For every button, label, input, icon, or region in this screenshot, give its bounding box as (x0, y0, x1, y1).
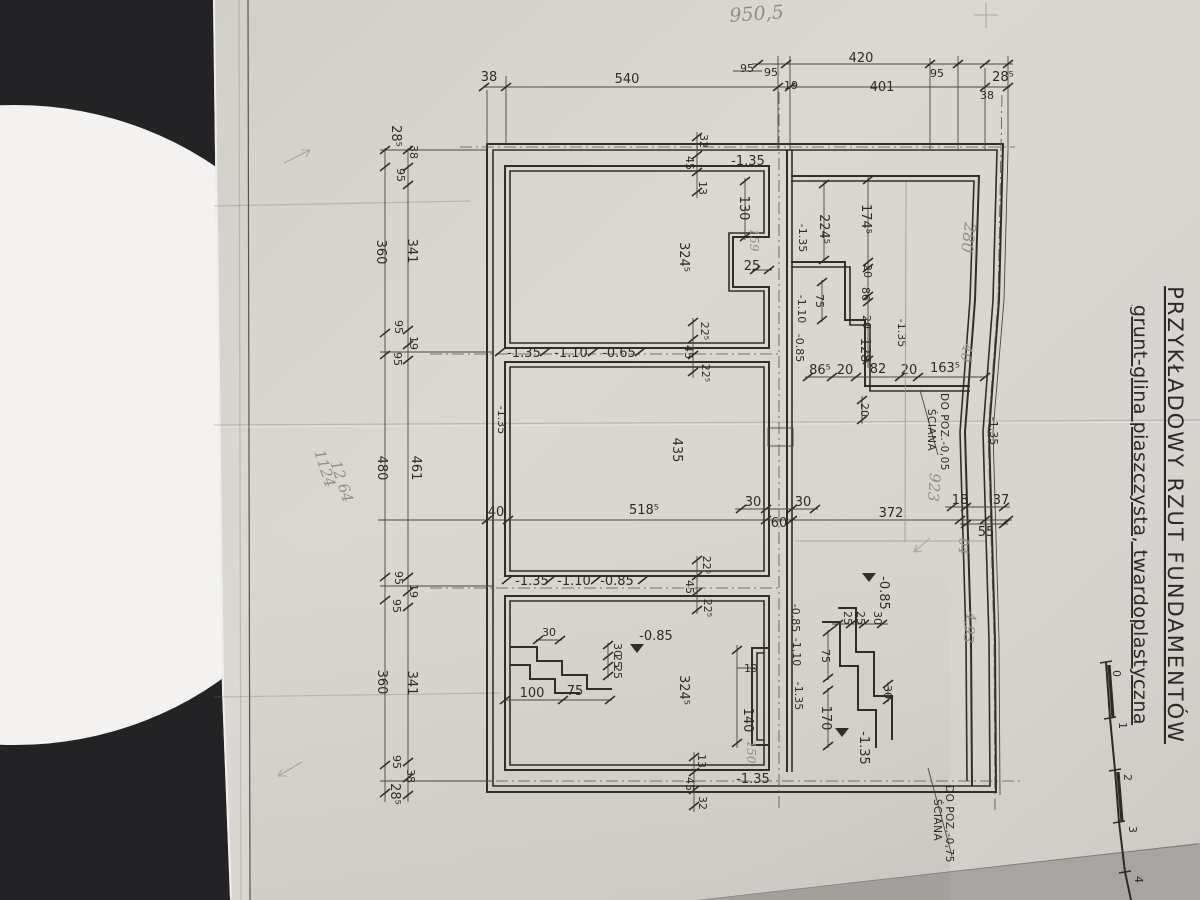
handwritten-number: 150 (744, 741, 758, 764)
handwritten-number: 923 (924, 472, 944, 502)
dim-label: 20 (837, 363, 854, 378)
dim-label: 45 (683, 156, 696, 170)
dim-label: 30 (795, 495, 812, 510)
level-label: -1.35 (515, 574, 549, 589)
level-label: -1.10 (795, 295, 808, 323)
wall-note-bottom-line1: ŚCIANA (931, 799, 944, 842)
dim-label: 32 (697, 134, 710, 148)
dim-label: 86⁵ (809, 363, 831, 378)
handwritten-number: 4,93 (959, 610, 978, 644)
level-label: -1.35 (731, 154, 765, 169)
scene: 38 540 95 95 19 420 401 95 38 28⁵ 28⁵ 38… (0, 0, 1200, 900)
dim-label: 324⁵ (676, 242, 691, 272)
dim-label: 341 (404, 239, 419, 264)
dim-label: 40 (488, 505, 505, 520)
level-label: -1.35 (736, 772, 770, 787)
dim-label: 22⁵ (700, 556, 713, 574)
dim-label: 22⁵ (698, 322, 711, 340)
dim-label: 95 (390, 599, 403, 613)
dim-label: 30 (871, 611, 884, 625)
dim-label: 45 (683, 777, 696, 791)
dim-label: 75 (819, 649, 832, 663)
dim-label: 95 (392, 320, 405, 334)
dim-label: 86 (859, 287, 872, 301)
dim-label: 37 (993, 493, 1010, 508)
dim-label: 19 (407, 336, 420, 350)
dim-label: 341 (404, 671, 419, 696)
level-label: -0.85 (876, 576, 891, 610)
level-label: -0.85 (789, 604, 802, 632)
scale-tick-label: 1 (1116, 722, 1129, 729)
dim-label: 174⁵ (858, 204, 873, 234)
level-label: -1.35 (796, 224, 809, 252)
wall-note-bottom-line2: DO POZ.-0,75 (943, 785, 955, 863)
wall-note-mid-line1: ŚCIANA (925, 409, 938, 452)
dim-label: 420 (849, 51, 874, 66)
level-label: -1.35 (495, 406, 508, 434)
dim-label: 75 (813, 294, 826, 308)
dim-label: 75 (567, 684, 584, 699)
dim-label: 13 (696, 181, 709, 195)
level-label: -1.35 (987, 417, 1000, 445)
dim-label: 435 (669, 438, 684, 463)
dim-label: 540 (615, 72, 640, 87)
dim-label: 480 (374, 456, 389, 481)
dim-label: 19 (784, 79, 798, 92)
dim-label: 372 (879, 506, 904, 521)
dim-label: 38 (980, 89, 994, 102)
dim-label: 461 (408, 456, 423, 481)
dim-label: 25 (611, 665, 624, 679)
dim-label: 140 (740, 708, 755, 733)
dim-label: 30 (745, 495, 762, 510)
level-label: -1.35 (792, 682, 805, 710)
scale-tick-label: 3 (1126, 826, 1139, 833)
dim-label: 30 (881, 685, 894, 699)
dim-label: 20 (861, 264, 874, 278)
dim-label: 360 (373, 240, 388, 265)
dim-label: 20 (901, 363, 918, 378)
dim-label: 20 (858, 403, 871, 417)
wall-note-mid-line2: DO POZ.-0,05 (938, 393, 950, 471)
dim-label: 95 (930, 67, 944, 80)
dim-label: 20 (860, 315, 873, 329)
dim-label: 28⁵ (387, 783, 402, 805)
dim-label: 401 (870, 80, 895, 95)
dim-label: 22⁵ (701, 599, 714, 617)
level-label: -1.10 (790, 638, 803, 666)
drawing-title: PRZYKŁADOWY RZUT FUNDAMENTÓW (1163, 286, 1188, 744)
dim-label: 95 (390, 755, 403, 769)
dim-label: 38 (481, 70, 498, 85)
dim-label: 30 (542, 626, 556, 639)
dim-label: 100 (520, 686, 545, 701)
dim-label: 95 (740, 62, 754, 75)
dim-label: 163⁵ (930, 361, 960, 376)
handwritten-number: 280 (957, 220, 980, 254)
dim-label: 38 (404, 769, 417, 783)
dim-label: 45 (682, 345, 695, 359)
dim-label: 18 (952, 493, 969, 508)
handwritten-number: 950,5 (729, 1, 785, 27)
dim-label: 55 (978, 525, 995, 540)
scale-tick-label: 0 (1110, 670, 1123, 677)
dim-label: 95 (391, 352, 404, 366)
scale-tick-label: 4 (1132, 876, 1145, 883)
dim-label: 360 (374, 670, 389, 695)
dim-label: 25 (841, 611, 854, 625)
dim-label: 82 (870, 362, 887, 377)
dim-label: 324⁵ (676, 675, 691, 705)
level-label: -0.85 (639, 629, 673, 644)
handwritten-number: 04 (955, 538, 971, 555)
dim-label: 130 (736, 196, 751, 221)
level-label: -0.85 (600, 574, 634, 589)
dim-label: 128 (857, 338, 872, 363)
dim-label: 32 (696, 796, 709, 810)
dim-label: 19 (744, 662, 758, 675)
level-label: -1.35 (856, 731, 871, 765)
drawing-subtitle: grunt-glina piaszczysta, twardoplastyczn… (1129, 305, 1151, 725)
dim-label: 28⁵ (388, 125, 403, 147)
dim-label: 25 (744, 259, 761, 274)
dim-label: 95 (394, 168, 407, 182)
dim-label: 95 (392, 571, 405, 585)
level-label: -1.35 (507, 346, 541, 361)
dim-label: 170 (818, 706, 833, 731)
dim-label: 22⁵ (699, 364, 712, 382)
dim-label: 19 (407, 584, 420, 598)
dim-label: 25 (854, 611, 867, 625)
dim-label: 518⁵ (629, 503, 659, 518)
level-label: -1.10 (557, 574, 591, 589)
dim-label: 13 (695, 754, 708, 768)
dim-label: 45 (683, 580, 696, 594)
dim-label: 224⁵ (816, 214, 831, 244)
dim-label: 95 (764, 66, 778, 79)
handwritten-number: 40 (956, 342, 975, 363)
photo-of-foundation-plan: 38 540 95 95 19 420 401 95 38 28⁵ 28⁵ 38… (0, 0, 1200, 900)
level-label: -0.85 (793, 334, 806, 362)
dim-label: 60 (771, 516, 788, 531)
dim-label: 28⁵ (992, 70, 1014, 85)
handwritten-number: 159 (747, 229, 761, 252)
level-label: -0.65 (602, 346, 636, 361)
dim-label: 38 (407, 145, 420, 159)
scale-tick-label: 2 (1121, 774, 1134, 781)
level-label: -1.10 (554, 346, 588, 361)
